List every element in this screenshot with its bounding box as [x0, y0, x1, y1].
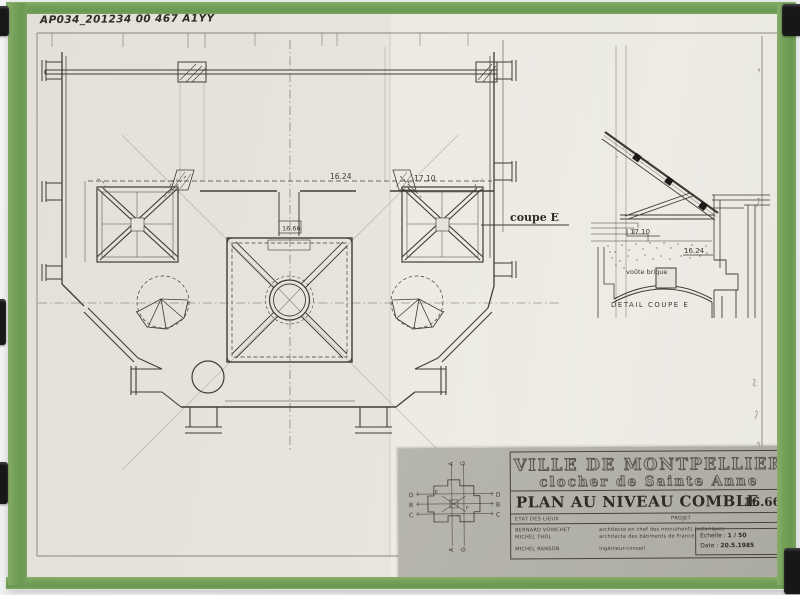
detail-vault-note: voûte brique [626, 268, 667, 276]
keyplan-b-right: B [496, 502, 500, 509]
status-etat: ETAT DES LIEUX [515, 516, 559, 522]
dim-16-66: 16.66 [282, 225, 301, 233]
keyplan-a-bottom: A [448, 547, 455, 552]
masking-tape-bottom [6, 577, 794, 589]
team-name-1: BERNARD VOINCHET [515, 527, 597, 534]
binder-clip-top-right [782, 4, 800, 36]
scale-label: Echelle : [700, 532, 726, 539]
detail-level-16-24: 16.24 [684, 247, 705, 255]
scale-date-box: Echelle : 1 / 50 Date : 20.5.1985 [695, 528, 783, 556]
key-plan: A G D B C D B C E F A G [404, 456, 507, 557]
dim-16-24: 16.24 [330, 172, 352, 181]
keyplan-d-right: D [496, 492, 501, 499]
binder-clip-top-left [0, 6, 9, 36]
round-turret [192, 361, 224, 393]
scale-value: 1 / 50 [728, 532, 747, 539]
masking-tape-right [777, 3, 796, 585]
keyplan-f-inner: F [466, 506, 469, 512]
masking-tape-top [6, 2, 796, 14]
binder-clip-bottom-right [784, 548, 800, 594]
keyplan-e-inner: E [435, 490, 438, 496]
central-square [227, 238, 352, 362]
spiral-stair-left [136, 276, 189, 329]
date-line: Date : 20.5.1985 [700, 542, 754, 549]
centerlines [38, 40, 560, 470]
spiral-stair-right [391, 276, 444, 329]
keyplan-d-left: D [409, 492, 414, 499]
masking-tape-left [8, 3, 27, 585]
margin-scribbles [753, 69, 759, 446]
binder-clip-left-lower [0, 462, 8, 504]
keyplan-g-bottom: G [460, 547, 467, 552]
photo-of-architectural-drawing: coupe E 16.24 17.10 16.66 [0, 0, 800, 595]
detail-level-17-10: 17.10 [630, 228, 650, 236]
title-block-header: VILLE DE MONTPELLIER clocher de Sainte A… [511, 451, 787, 492]
sheet-title: PLAN AU NIVEAU COMBLE [516, 492, 759, 511]
left-vault [97, 179, 178, 262]
keyplan-a-top: A [448, 461, 455, 466]
status-projet: PROJET [671, 515, 691, 521]
keyplan-g-top: G [460, 461, 467, 466]
keyplan-c-left: C [409, 512, 413, 519]
section-label: coupe E [510, 211, 559, 224]
detail-caption: DETAIL COUPE E [611, 301, 689, 309]
dim-17-10: 17.10 [414, 174, 436, 183]
keyplan-b-left: B [409, 502, 413, 509]
detail-section [591, 45, 770, 318]
binder-clip-left-middle [0, 299, 6, 345]
city-title: VILLE DE MONTPELLIER [511, 454, 787, 475]
team-name-3: MICHEL RANSON [515, 546, 597, 553]
title-block-table: VILLE DE MONTPELLIER clocher de Sainte A… [510, 450, 789, 560]
sheet-level: 16.66 [743, 495, 781, 509]
date-value: 20.5.1985 [720, 542, 754, 549]
scale-line: Echelle : 1 / 50 [700, 532, 746, 539]
team-row: BERNARD VOINCHET architecte en chef des … [511, 523, 787, 558]
title-block: A G D B C D B C E F A G VILLE DE MONTPEL… [398, 446, 793, 579]
team-name-2: MICHEL THOL [515, 534, 597, 541]
date-label: Date : [700, 542, 718, 549]
building-subtitle: clocher de Sainte Anne [511, 473, 787, 491]
keyplan-c-right: C [496, 512, 500, 519]
sheet-title-row: PLAN AU NIVEAU COMBLE 16.66 [511, 490, 787, 515]
